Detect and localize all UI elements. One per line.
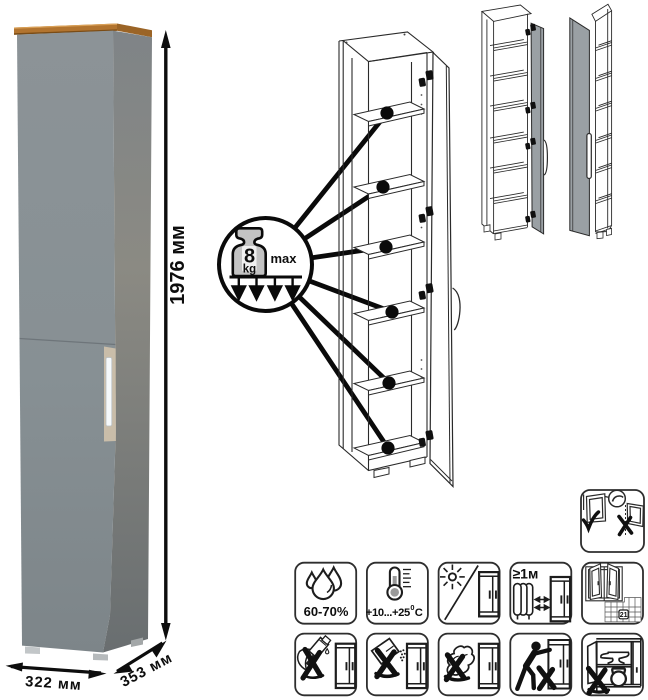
- svg-text:≥1м: ≥1м: [513, 566, 539, 582]
- svg-text:322 мм: 322 мм: [25, 674, 83, 694]
- svg-text:+10...+25: +10...+25: [366, 607, 410, 619]
- svg-text:1976 мм: 1976 мм: [167, 225, 189, 305]
- svg-text:С: С: [415, 607, 423, 619]
- svg-text:max: max: [270, 251, 297, 266]
- svg-text:21: 21: [620, 612, 628, 619]
- svg-text:kg: kg: [243, 264, 256, 276]
- svg-text:60-70%: 60-70%: [304, 604, 349, 619]
